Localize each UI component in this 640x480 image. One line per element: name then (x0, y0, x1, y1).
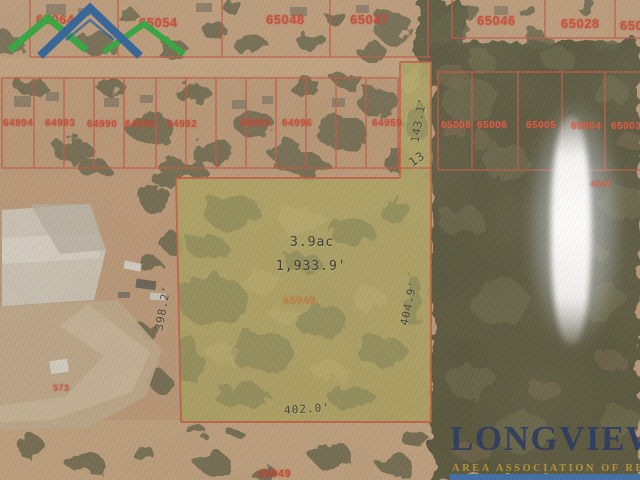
parcel-label: 65004 (571, 122, 601, 132)
parcel-label: 65028 (620, 19, 640, 32)
parcel-area-label: 3.9ac (290, 236, 334, 249)
parcel-label: 64995 (240, 119, 270, 129)
logo-footer-bar (450, 474, 640, 480)
parcel-label: 64994 (3, 119, 33, 129)
parcel-label: 65048 (266, 13, 305, 26)
parcel-label: 65003 (611, 122, 640, 132)
parcel-label: 64993 (45, 119, 75, 129)
dimension-label-bottom: 402.0' (284, 402, 330, 416)
parcel-label: 4647 (590, 180, 612, 189)
parcel-label: 65049 (258, 469, 291, 480)
parcel-perimeter-label: 1,933.9' (276, 260, 347, 273)
parcel-label: 65028 (561, 17, 600, 30)
parcel-label: 65047 (350, 13, 389, 26)
parcel-label: 64992 (125, 120, 155, 130)
longview-logo-text: LONGVIEW (450, 420, 640, 459)
parcel-label: 65005 (526, 121, 556, 131)
parcel-label: 65054 (139, 16, 178, 29)
parcel-label: 65046 (477, 14, 516, 27)
parcel-label: 64959 (372, 119, 402, 129)
parcel-label: 64996 (282, 119, 312, 129)
longview-logo-tagline: AREA ASSOCIATION OF REALTORS (452, 463, 640, 474)
parcel-label: 65006 (477, 121, 507, 131)
parcel-label: 65006 (441, 121, 471, 131)
parcel-label: 64992 (167, 120, 197, 130)
subject-parcel-id-label: 65049 (283, 296, 316, 307)
parcel-label: 573 (53, 384, 70, 393)
aerial-map-view[interactable]: 65064 65054 65048 65047 65046 65028 6502… (0, 0, 640, 480)
parcel-label: 65064 (36, 13, 75, 26)
parcel-label: 64990 (87, 120, 117, 130)
